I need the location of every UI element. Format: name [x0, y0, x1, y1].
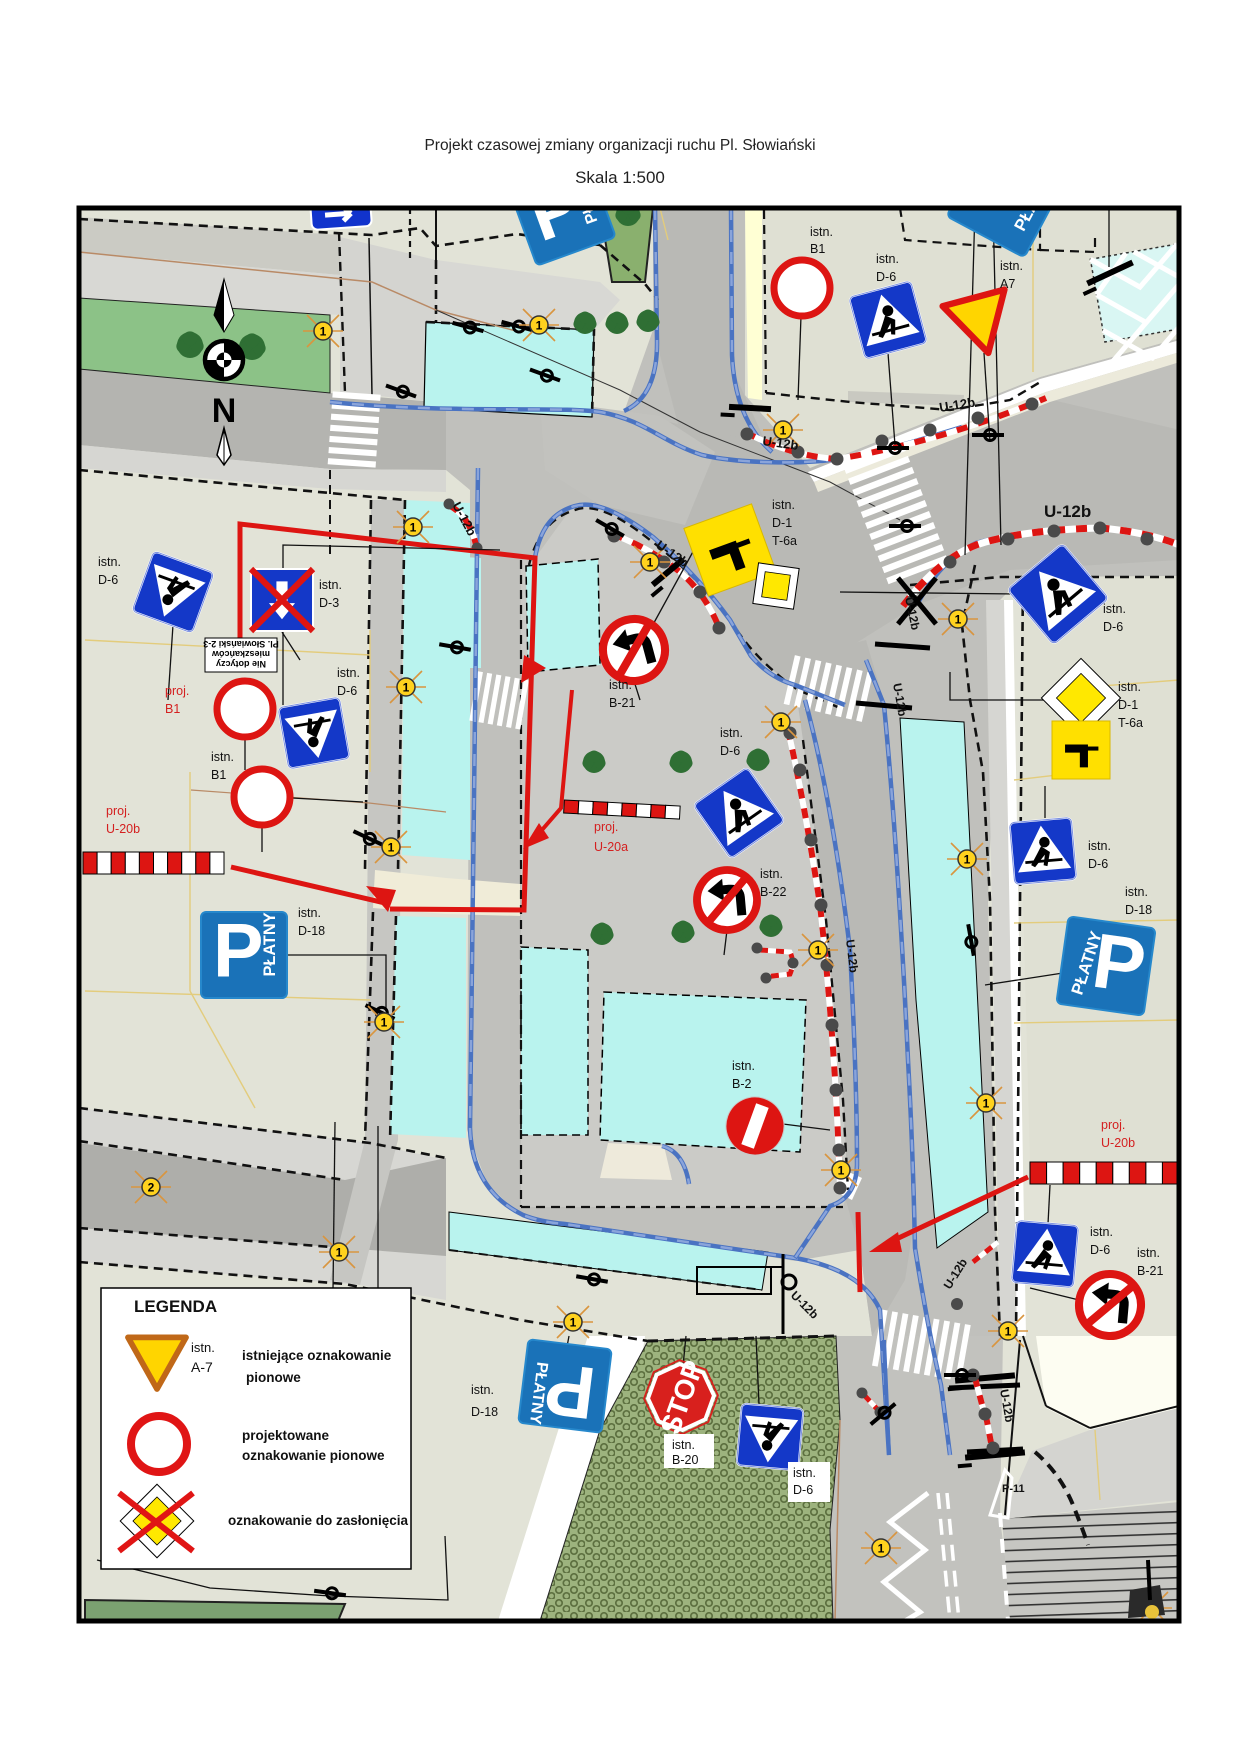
svg-text:A7: A7	[1000, 277, 1015, 291]
svg-text:istn.: istn.	[876, 252, 899, 266]
svg-text:D-3: D-3	[319, 596, 339, 610]
svg-text:U-12b: U-12b	[1044, 502, 1091, 521]
svg-text:proj.: proj.	[594, 820, 618, 834]
svg-text:D-6: D-6	[876, 270, 896, 284]
svg-text:istn.: istn.	[609, 678, 632, 692]
svg-text:LEGENDA: LEGENDA	[134, 1297, 217, 1316]
svg-text:istn.: istn.	[760, 867, 783, 881]
svg-text:istn.: istn.	[720, 726, 743, 740]
svg-text:1: 1	[878, 1542, 885, 1556]
svg-text:istn.: istn.	[298, 906, 321, 920]
svg-text:istn.: istn.	[98, 555, 121, 569]
svg-text:istn.: istn.	[793, 1466, 816, 1480]
svg-text:1: 1	[381, 1016, 388, 1030]
svg-text:istn.: istn.	[1118, 680, 1141, 694]
svg-text:D-6: D-6	[337, 684, 357, 698]
svg-text:2: 2	[148, 1181, 155, 1195]
svg-text:B1: B1	[810, 242, 825, 256]
svg-text:1: 1	[647, 556, 654, 570]
svg-text:istn.: istn.	[211, 750, 234, 764]
svg-text:1: 1	[1005, 1325, 1012, 1339]
svg-text:1: 1	[388, 841, 395, 855]
svg-text:B1: B1	[165, 702, 180, 716]
svg-text:istn.: istn.	[471, 1383, 494, 1397]
svg-text:istn.: istn.	[191, 1340, 215, 1355]
svg-text:proj.: proj.	[1101, 1118, 1125, 1132]
svg-text:U-20b: U-20b	[1101, 1136, 1135, 1150]
svg-text:istn.: istn.	[319, 578, 342, 592]
svg-text:istn.: istn.	[772, 498, 795, 512]
svg-text:D-6: D-6	[1103, 620, 1123, 634]
svg-text:D-6: D-6	[720, 744, 740, 758]
svg-text:1: 1	[955, 613, 962, 627]
svg-text:pionowe: pionowe	[246, 1370, 301, 1385]
svg-text:1: 1	[403, 681, 410, 695]
svg-text:A-7: A-7	[191, 1359, 213, 1375]
svg-text:1: 1	[410, 521, 417, 535]
svg-text:B-21: B-21	[1137, 1264, 1163, 1278]
svg-text:proj.: proj.	[106, 804, 130, 818]
svg-text:1: 1	[320, 325, 327, 339]
svg-text:B-2: B-2	[732, 1077, 752, 1091]
svg-text:B-21: B-21	[609, 696, 635, 710]
svg-text:1: 1	[778, 716, 785, 730]
svg-text:oznakowanie pionowe: oznakowanie pionowe	[242, 1448, 385, 1463]
svg-text:1: 1	[815, 944, 822, 958]
svg-text:T-6a: T-6a	[1118, 716, 1143, 730]
svg-text:istn.: istn.	[1090, 1225, 1113, 1239]
svg-text:N: N	[212, 392, 237, 430]
svg-text:Projekt czasowej zmiany organi: Projekt czasowej zmiany organizacji ruch…	[424, 137, 815, 154]
svg-text:B-20: B-20	[672, 1453, 698, 1467]
svg-text:istn.: istn.	[672, 1438, 695, 1452]
svg-text:T-6a: T-6a	[772, 534, 797, 548]
svg-text:istn.: istn.	[337, 666, 360, 680]
svg-text:P: P	[540, 1347, 599, 1435]
svg-text:istniejące oznakowanie: istniejące oznakowanie	[242, 1348, 392, 1363]
svg-text:istn.: istn.	[810, 225, 833, 239]
svg-text:D-18: D-18	[298, 924, 325, 938]
svg-text:B1: B1	[211, 768, 226, 782]
svg-text:1: 1	[964, 853, 971, 867]
svg-text:P: P	[213, 909, 263, 994]
svg-text:D-6: D-6	[1090, 1243, 1110, 1257]
svg-text:istn.: istn.	[1137, 1246, 1160, 1260]
svg-text:istn.: istn.	[732, 1059, 755, 1073]
svg-text:proj.: proj.	[165, 684, 189, 698]
svg-text:D-6: D-6	[1088, 857, 1108, 871]
svg-text:istn.: istn.	[1125, 885, 1148, 899]
svg-text:1: 1	[570, 1316, 577, 1330]
svg-text:1: 1	[838, 1164, 845, 1178]
svg-text:D-18: D-18	[1125, 903, 1152, 917]
svg-text:istn.: istn.	[1103, 602, 1126, 616]
svg-text:D-6: D-6	[98, 573, 118, 587]
svg-text:Skala 1:500: Skala 1:500	[575, 168, 665, 187]
svg-text:U-20b: U-20b	[106, 822, 140, 836]
svg-text:1: 1	[983, 1097, 990, 1111]
svg-text:D-6: D-6	[793, 1483, 813, 1497]
svg-text:oznakowanie do zasłonięcia: oznakowanie do zasłonięcia	[228, 1513, 409, 1528]
svg-text:D-1: D-1	[1118, 698, 1138, 712]
svg-text:projektowane: projektowane	[242, 1428, 330, 1443]
svg-text:PŁATNY: PŁATNY	[261, 912, 279, 976]
svg-text:U-20a: U-20a	[594, 840, 628, 854]
svg-text:Nie dotyczy: Nie dotyczy	[216, 659, 266, 669]
svg-text:1: 1	[536, 319, 543, 333]
svg-text:B-22: B-22	[760, 885, 786, 899]
svg-text:Pl. Słowiański 2-3: Pl. Słowiański 2-3	[203, 639, 279, 649]
svg-text:istn.: istn.	[1000, 259, 1023, 273]
svg-text:P-11: P-11	[1002, 1483, 1025, 1495]
svg-text:istn.: istn.	[1088, 839, 1111, 853]
svg-text:mieszkańców: mieszkańców	[211, 649, 270, 659]
svg-text:1: 1	[336, 1246, 343, 1260]
svg-text:D-1: D-1	[772, 516, 792, 530]
svg-text:D-18: D-18	[471, 1405, 498, 1419]
